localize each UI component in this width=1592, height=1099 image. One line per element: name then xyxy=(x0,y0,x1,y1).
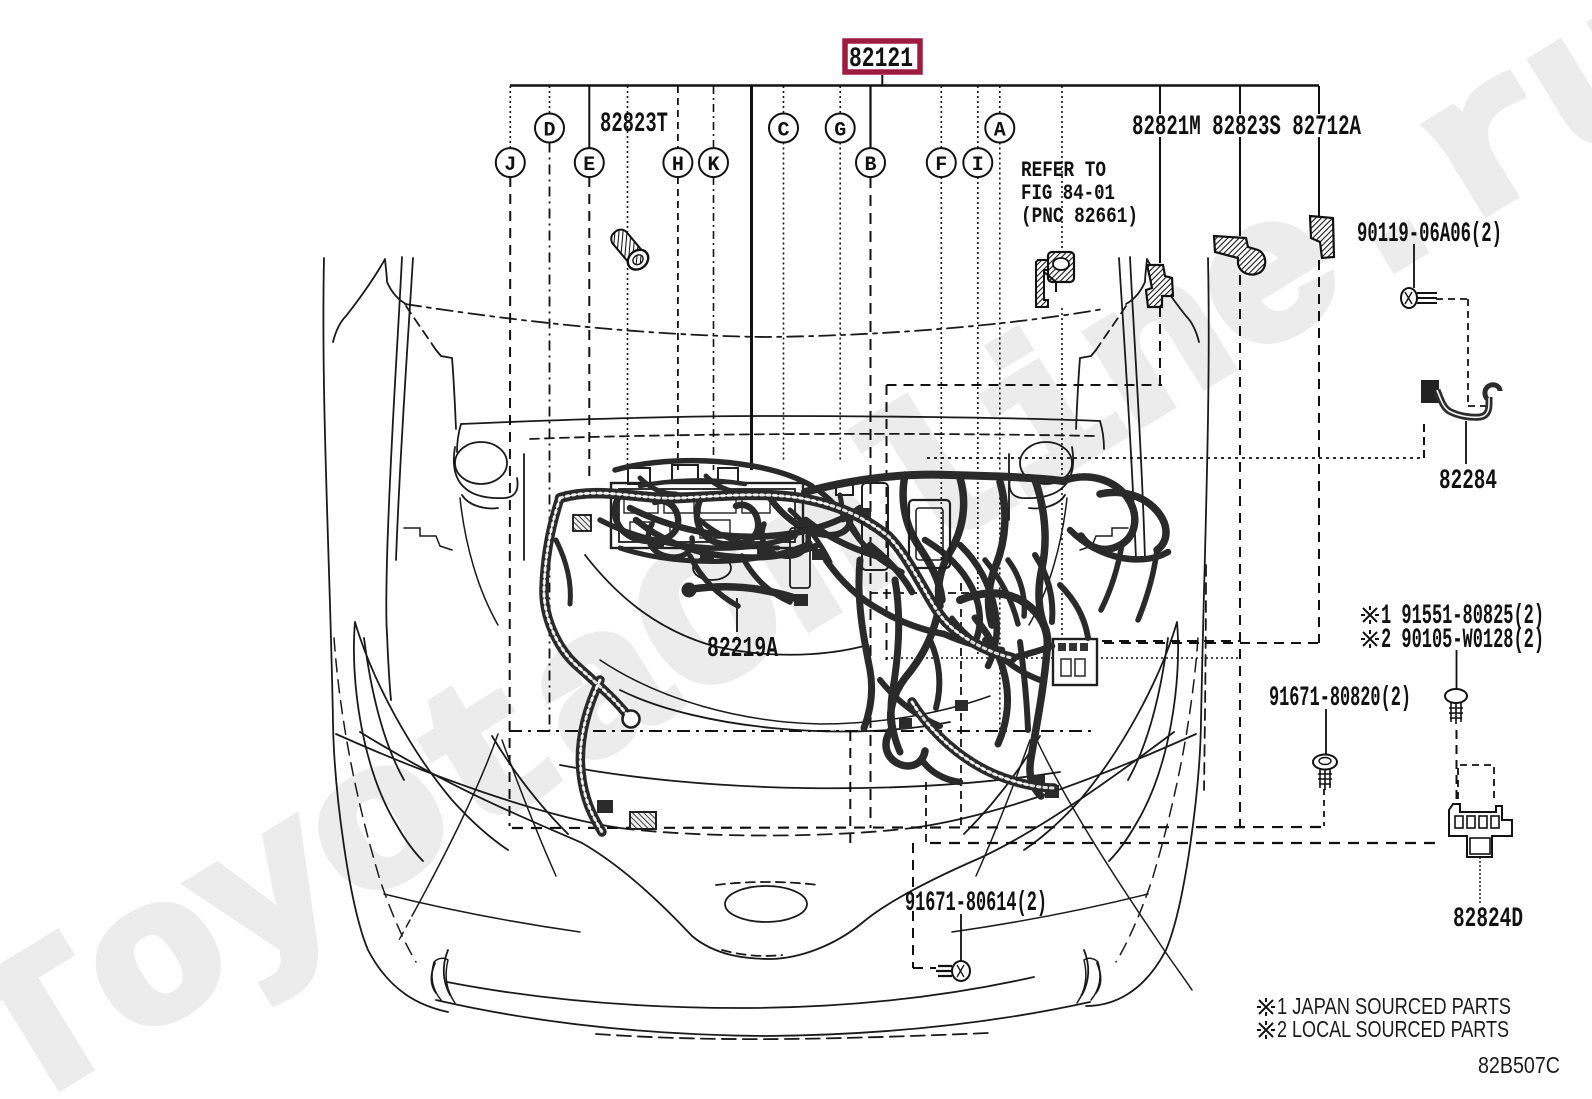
svg-text:H: H xyxy=(672,154,684,177)
svg-text:82821M 82823S 82712A: 82821M 82823S 82712A xyxy=(1132,112,1361,143)
svg-text:A: A xyxy=(994,119,1006,142)
svg-text:90119-06A06(2): 90119-06A06(2) xyxy=(1357,219,1502,250)
svg-text:B: B xyxy=(864,154,876,177)
svg-text:91671-80820(2): 91671-80820(2) xyxy=(1269,683,1411,714)
svg-text:82219A: 82219A xyxy=(707,632,778,665)
svg-text:REFER TO: REFER TO xyxy=(1021,158,1106,183)
svg-text:82823T: 82823T xyxy=(600,109,668,140)
svg-text:K: K xyxy=(707,154,719,177)
svg-text:E: E xyxy=(583,154,595,177)
svg-text:82284: 82284 xyxy=(1439,466,1497,497)
svg-text:G: G xyxy=(834,119,846,142)
svg-text:91671-80614(2): 91671-80614(2) xyxy=(905,888,1047,919)
svg-text:(PNC 82661): (PNC 82661) xyxy=(1021,204,1138,229)
svg-text:I: I xyxy=(972,154,984,177)
svg-text:J: J xyxy=(504,154,516,177)
svg-text:82B507C: 82B507C xyxy=(1478,1052,1560,1078)
svg-text:D: D xyxy=(543,119,555,142)
svg-text:82121: 82121 xyxy=(849,44,913,75)
svg-text:2 90105-W0128(2): 2 90105-W0128(2) xyxy=(1381,625,1544,656)
svg-text:2 LOCAL SOURCED PARTS: 2 LOCAL SOURCED PARTS xyxy=(1277,1016,1509,1042)
svg-text:82824D: 82824D xyxy=(1453,904,1523,935)
svg-text:FIG 84-01: FIG 84-01 xyxy=(1021,181,1115,206)
svg-text:C: C xyxy=(777,119,789,142)
svg-text:F: F xyxy=(935,154,947,177)
